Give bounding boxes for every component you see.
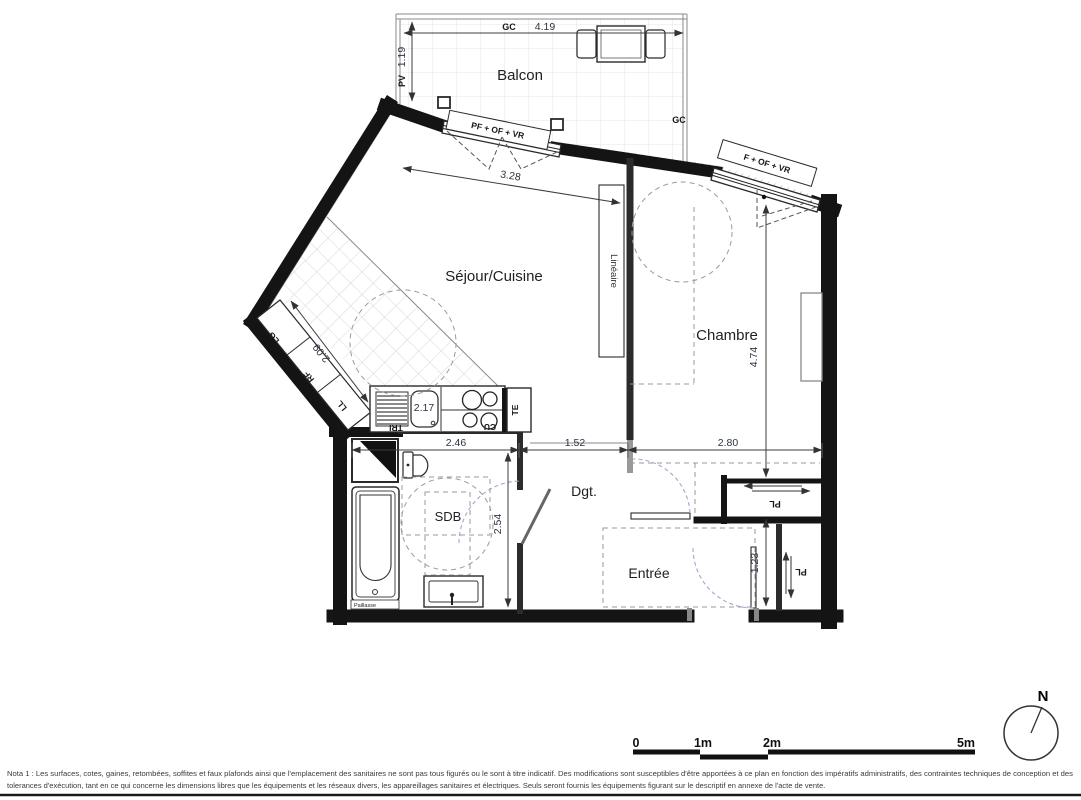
label-tri: TRI (389, 423, 403, 433)
compass-north-label: N (1038, 688, 1049, 705)
scale-tick-5m: 5m (957, 736, 975, 750)
dim-bedroom-width: 2.80 (718, 437, 739, 449)
dim-worktop: 2.17 (414, 402, 435, 414)
room-label-living: Séjour/Cuisine (445, 268, 543, 285)
label-te: TE (510, 404, 520, 415)
label-gc-right: GC (672, 115, 686, 125)
label-gc-top: GC (502, 22, 516, 32)
scale-tick-1m: 1m (694, 736, 712, 750)
label-pl-bottom: PL (795, 567, 807, 577)
bathtub (352, 487, 399, 601)
label-cu: CU (484, 422, 496, 432)
railing-post (551, 119, 563, 130)
room-label-bedroom: Chambre (696, 327, 758, 344)
dim-balcony-depth: 1.19 (396, 47, 408, 68)
floor-plan-drawing: Balcon GC 4.19 1.19 PV GC (0, 0, 1081, 800)
window-pivot-dot (762, 195, 766, 199)
washbasin (424, 576, 483, 607)
scale-tick-0: 0 (633, 736, 640, 750)
dim-bathroom-width: 2.46 (446, 437, 467, 449)
nota-line-1: Nota 1 : Les surfaces, cotes, gaines, re… (7, 769, 1073, 778)
label-pl-top: PL (769, 499, 781, 509)
room-label-bathroom: SDB (435, 509, 462, 524)
dim-bathroom-depth: 2.54 (492, 514, 504, 535)
floor-plan-sheet: Balcon GC 4.19 1.19 PV GC (0, 0, 1081, 800)
dim-entry-closet: 1.23 (749, 553, 761, 574)
dim-bedroom-depth: 4.74 (748, 347, 760, 368)
bed-headboard (801, 293, 822, 381)
room-label-balcony: Balcon (497, 67, 543, 84)
room-label-hallway: Dgt. (571, 483, 597, 499)
label-pv: PV (397, 75, 407, 87)
scale-tick-2m: 2m (763, 736, 781, 750)
label-lineaire: Linéaire (608, 254, 619, 288)
room-label-entry: Entrée (628, 565, 669, 581)
dim-hallway-opening: 1.52 (565, 437, 586, 449)
nota-line-2: tolerances d'exécution, tant en ce qui c… (7, 781, 825, 790)
dim-balcony-width: 4.19 (535, 21, 556, 33)
label-paillasse: Paillasse (354, 603, 376, 609)
balcony-table-and-chairs (577, 26, 665, 62)
railing-post (438, 97, 450, 108)
